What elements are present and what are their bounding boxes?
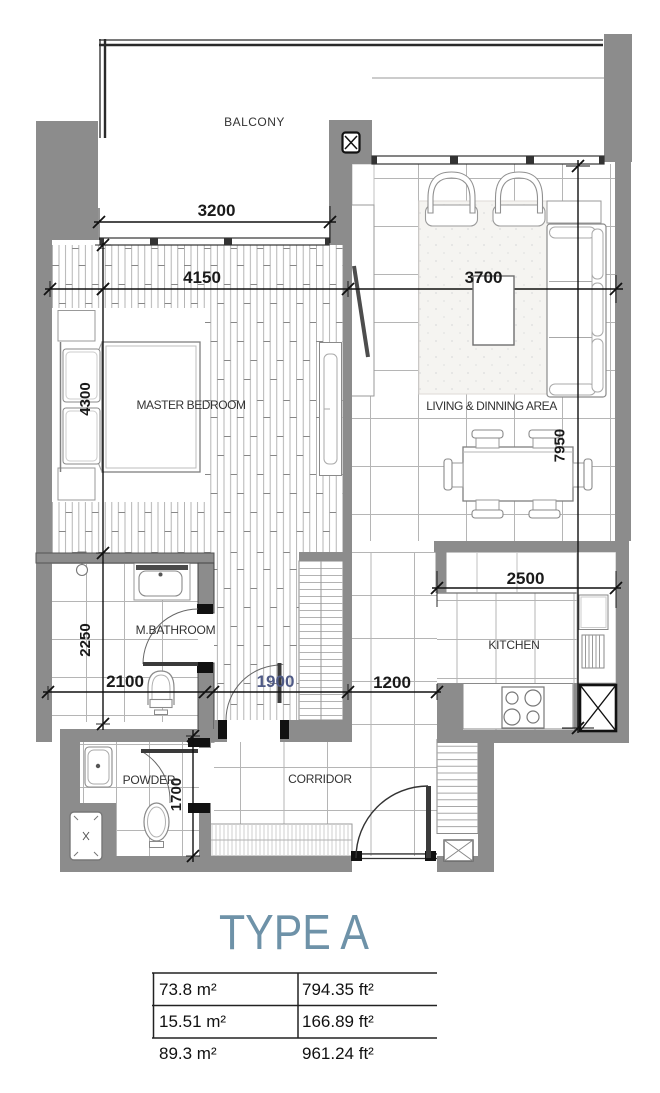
- svg-text:TYPE A: TYPE A: [219, 906, 369, 960]
- svg-text:1200: 1200: [373, 673, 411, 692]
- svg-text:2100: 2100: [106, 672, 144, 691]
- svg-text:2250: 2250: [77, 623, 94, 656]
- svg-text:LIVING & DINNING AREA: LIVING & DINNING AREA: [426, 399, 557, 413]
- svg-text:794.35 ft²: 794.35 ft²: [302, 980, 374, 999]
- svg-text:4150: 4150: [183, 268, 221, 287]
- svg-text:POWDER: POWDER: [123, 773, 176, 787]
- svg-text:961.24 ft²: 961.24 ft²: [302, 1044, 374, 1063]
- svg-text:7950: 7950: [552, 429, 569, 462]
- svg-text:KITCHEN: KITCHEN: [488, 638, 539, 652]
- svg-text:MASTER BEDROOM: MASTER BEDROOM: [136, 398, 245, 412]
- svg-text:3200: 3200: [198, 201, 236, 220]
- svg-text:2500: 2500: [507, 569, 545, 588]
- svg-text:BALCONY: BALCONY: [224, 115, 285, 129]
- svg-text:15.51 m²: 15.51 m²: [159, 1012, 226, 1031]
- svg-text:166.89 ft²: 166.89 ft²: [302, 1012, 374, 1031]
- svg-text:M.BATHROOM: M.BATHROOM: [136, 623, 216, 637]
- svg-text:CORRIDOR: CORRIDOR: [288, 772, 352, 786]
- svg-text:1900: 1900: [257, 672, 295, 691]
- svg-text:4300: 4300: [77, 382, 94, 415]
- svg-text:89.3 m²: 89.3 m²: [159, 1044, 217, 1063]
- svg-text:3700: 3700: [465, 268, 503, 287]
- svg-text:73.8 m²: 73.8 m²: [159, 980, 217, 999]
